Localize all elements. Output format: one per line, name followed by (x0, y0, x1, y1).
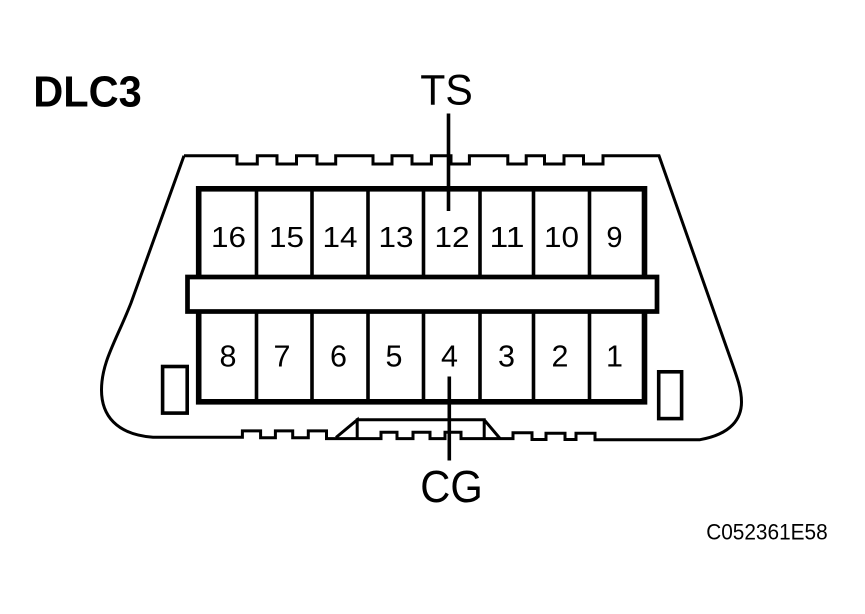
svg-text:TS: TS (420, 68, 473, 115)
svg-text:10: 10 (544, 222, 579, 254)
svg-text:2: 2 (552, 340, 569, 374)
svg-text:8: 8 (220, 340, 237, 374)
svg-text:14: 14 (323, 222, 358, 254)
svg-text:7: 7 (274, 340, 291, 374)
svg-text:12: 12 (435, 222, 470, 254)
svg-text:3: 3 (498, 340, 515, 374)
svg-text:16: 16 (211, 222, 246, 254)
svg-text:DLC3: DLC3 (33, 68, 142, 117)
svg-text:9: 9 (606, 222, 622, 254)
svg-text:5: 5 (386, 340, 403, 374)
svg-text:15: 15 (269, 222, 304, 254)
svg-text:4: 4 (441, 340, 458, 374)
svg-text:C052361E58: C052361E58 (706, 520, 828, 545)
svg-text:1: 1 (606, 340, 623, 374)
svg-text:CG: CG (420, 461, 483, 512)
svg-text:11: 11 (490, 222, 525, 254)
svg-text:6: 6 (330, 340, 347, 374)
svg-text:13: 13 (379, 222, 414, 254)
